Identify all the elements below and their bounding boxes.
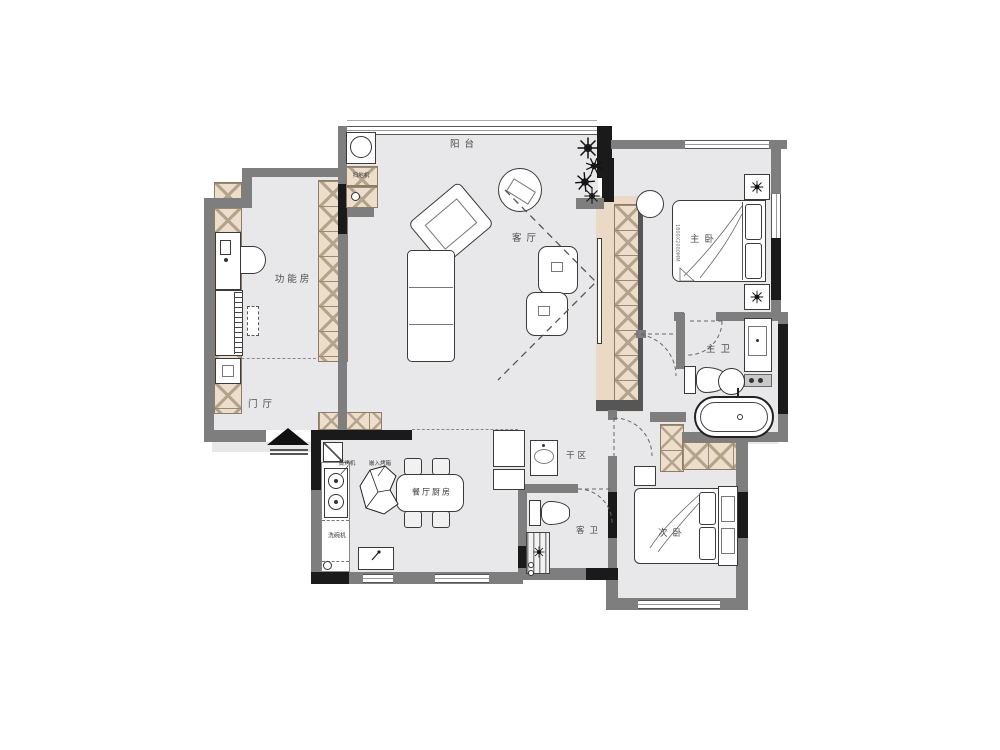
tall-cabinet	[493, 469, 525, 490]
window	[435, 574, 489, 583]
wardrobe-second-bedroom-row	[682, 442, 740, 470]
nightstand	[744, 174, 770, 200]
bed-size-label: 1800X2000MM	[674, 224, 680, 262]
pillow	[699, 527, 716, 560]
wall-segment	[204, 198, 214, 442]
appliance-label-built-in-oven: 嵌入烤箱	[369, 459, 391, 467]
room-label-guest-bath: 客卫	[571, 524, 603, 536]
wall-column	[311, 572, 349, 584]
burner-dot	[334, 479, 338, 483]
wall-segment	[338, 234, 347, 434]
dining-chair	[404, 511, 422, 528]
window	[638, 600, 720, 609]
wall-column	[311, 432, 321, 490]
washing-machine-drum-icon	[350, 136, 372, 158]
dining-chair	[404, 458, 422, 475]
wall-stub	[576, 198, 604, 209]
floor-plan: 阳台 客厅 主卧 主卫 功能房 门厅 餐厅厨房 干区 客卫 次卧 扫地机 洗碗机…	[0, 0, 1000, 750]
toilet-tank-icon	[529, 500, 541, 526]
wall-segment	[769, 140, 787, 149]
basin-icon	[534, 449, 554, 464]
room-label-balcony: 阳台	[445, 136, 479, 150]
desk-item-icon	[224, 258, 228, 262]
pillow	[745, 243, 762, 279]
wall-segment	[608, 410, 617, 420]
burner-dot	[334, 500, 338, 504]
room-label-master-bedroom: 主卧	[685, 231, 719, 245]
window-outer-line	[347, 120, 597, 121]
drain-icon	[528, 570, 534, 576]
room-label-function-room: 功能房	[272, 271, 313, 285]
room-label-foyer: 门厅	[243, 396, 277, 410]
wall-segment	[676, 313, 685, 369]
pillow	[745, 204, 762, 240]
room-label-living: 客厅	[507, 230, 541, 244]
sofa-cushion-line	[409, 287, 453, 288]
dining-chair	[432, 511, 450, 528]
wall-segment	[242, 168, 346, 177]
bed-headboard-line	[742, 202, 743, 280]
wall-column	[771, 238, 781, 300]
wall-segment	[778, 414, 788, 442]
desk-lamp-icon	[220, 240, 231, 255]
piano-bench	[247, 306, 259, 336]
kitchen-island-sink	[358, 547, 394, 570]
appliance-label-robot-vacuum: 扫地机	[353, 171, 370, 179]
pillow	[699, 492, 716, 525]
drain-icon	[528, 562, 534, 568]
bathtub-drain	[737, 414, 743, 420]
piano-keys	[234, 292, 243, 354]
wall-column	[311, 430, 412, 440]
side-table-notch	[538, 306, 550, 316]
window	[685, 140, 771, 149]
wall-segment	[778, 312, 788, 324]
window	[347, 126, 597, 135]
fridge-cabinet	[493, 430, 525, 467]
wall-segment	[311, 490, 321, 574]
shelf-dot	[758, 378, 763, 383]
storage-cabinet-inner	[222, 365, 234, 377]
wall-segment	[611, 140, 685, 149]
wardrobe-second-bedroom-col	[660, 424, 684, 472]
headboard-cushion	[721, 496, 735, 522]
wall-segment	[736, 442, 748, 492]
entrance-threshold-line	[270, 453, 308, 455]
tv-wall-edge	[638, 204, 643, 404]
dishwasher-outline	[322, 520, 349, 562]
vanity-dot	[756, 339, 759, 342]
floor-drain-icon	[323, 561, 332, 570]
bathtub-faucet	[737, 388, 739, 398]
wall-column	[586, 568, 618, 580]
appliance-label-dishwasher: 洗碗机	[328, 531, 346, 540]
sofa-cushion-line	[409, 324, 453, 325]
balcony-sink-icon	[351, 192, 360, 201]
room-label-master-bath: 主卫	[701, 341, 735, 355]
stool-icon	[718, 368, 745, 395]
bathtub-inner	[700, 402, 768, 432]
wall-segment	[518, 484, 578, 493]
tv-wall-cap	[596, 400, 643, 411]
wall-column	[608, 492, 617, 538]
toilet-tank-icon	[684, 366, 696, 394]
room-label-dry-area: 干区	[563, 449, 589, 461]
desk-chair	[240, 246, 266, 274]
shelf-dot	[749, 378, 754, 383]
wall-segment	[650, 412, 686, 422]
toilet-bowl-icon	[541, 501, 570, 525]
coffee-table-notch	[551, 262, 563, 272]
faucet-dot	[542, 444, 545, 447]
room-label-second-bedroom: 次卧	[653, 525, 687, 539]
tv-panel	[597, 238, 602, 344]
dining-chair	[432, 458, 450, 475]
bedroom-chair	[636, 190, 664, 218]
wall-segment	[636, 330, 646, 338]
nightstand	[634, 466, 656, 486]
nightstand	[744, 284, 770, 310]
window	[771, 194, 781, 238]
wall-segment	[771, 149, 781, 194]
entrance-arrow-icon	[267, 428, 309, 445]
window	[363, 574, 393, 583]
headboard-cushion	[721, 528, 735, 554]
appliance-label-steam-oven: 蒸烤机	[339, 459, 356, 467]
wall-column	[778, 324, 788, 414]
shoe-cabinet	[318, 412, 382, 430]
entrance-threshold-line	[270, 449, 308, 451]
room-label-dining-kitchen: 餐厅厨房	[410, 487, 452, 498]
wall-column	[602, 158, 614, 202]
sofa-chaise	[407, 250, 455, 362]
